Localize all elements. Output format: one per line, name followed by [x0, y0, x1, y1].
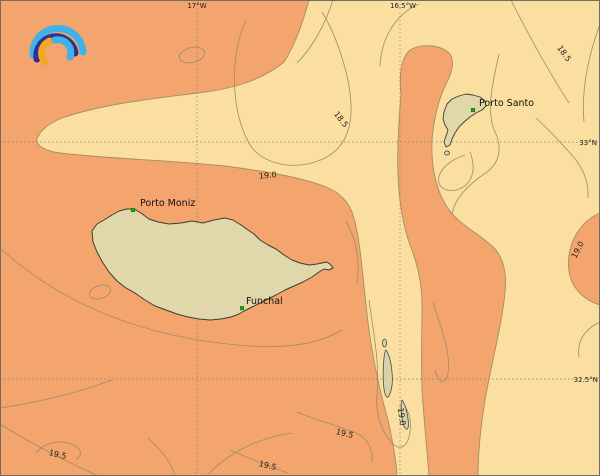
longitude-label-17w: 17°W	[187, 2, 206, 10]
city-marker-porto-moniz	[131, 208, 135, 212]
city-label-porto-santo: Porto Santo	[479, 98, 534, 109]
city-marker-porto-santo	[471, 108, 475, 112]
city-label-funchal: Funchal	[246, 296, 283, 307]
map-canvas: 18.5 18.5 19.0 19.0 19.0 19.5 19.5 19.5 …	[0, 0, 600, 476]
longitude-label-16-5w: 16.5°W	[390, 2, 416, 10]
city-label-porto-moniz: Porto Moniz	[140, 198, 195, 209]
sst-contour-map: 18.5 18.5 19.0 19.0 19.0 19.5 19.5 19.5 …	[0, 0, 600, 476]
contour-label-19-0: 19.0	[258, 170, 277, 181]
city-marker-funchal	[240, 306, 244, 310]
latitude-label-33n: 33°N	[579, 139, 597, 147]
porto-santo-islet	[445, 151, 450, 155]
latitude-label-32-5n: 32.5°N	[574, 376, 598, 384]
